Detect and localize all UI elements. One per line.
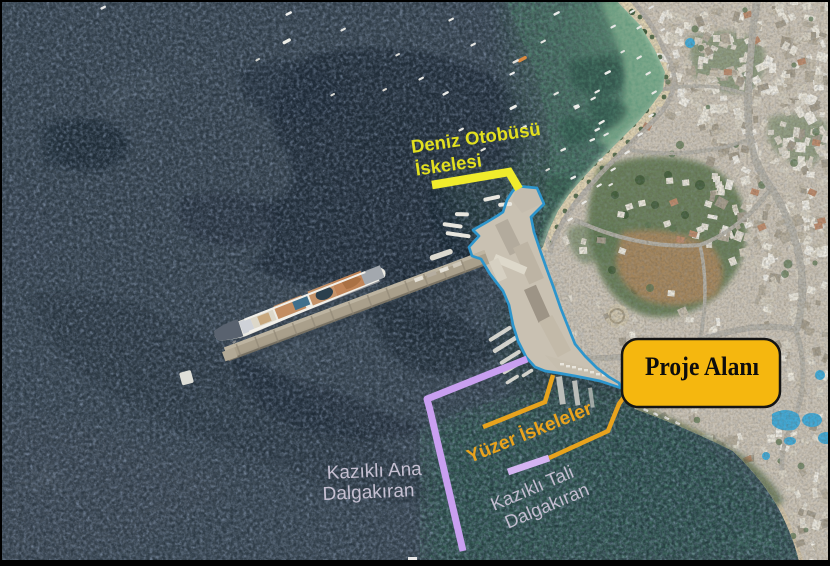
svg-text:Proje Alanı: Proje Alanı <box>645 352 759 381</box>
svg-text:Dalgakıran: Dalgakıran <box>322 480 415 505</box>
